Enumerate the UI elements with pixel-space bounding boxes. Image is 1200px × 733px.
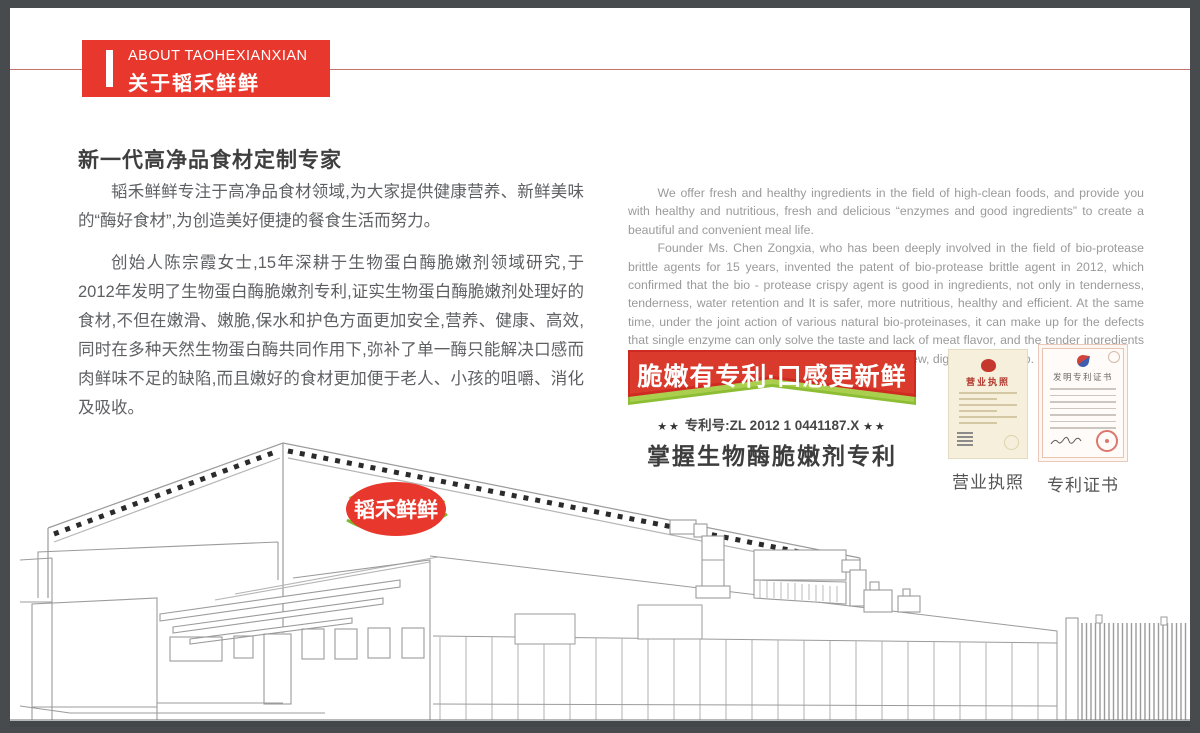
- factory-center-section: [157, 557, 438, 704]
- factory-ground: [10, 720, 1190, 727]
- section-title-en: ABOUT TAOHEXIANXIAN: [128, 48, 308, 64]
- english-paragraph-1: We offer fresh and healthy ingredients i…: [628, 184, 1144, 239]
- factory-right-facade: [293, 560, 430, 720]
- ribbon-slogan: 脆嫩有专利·口感更新鲜: [628, 357, 916, 393]
- stamp-icon: [1108, 351, 1120, 363]
- factory-logo-text: 韬禾鲜鲜: [354, 498, 438, 522]
- banner-accent-bar: [106, 50, 113, 87]
- intro-text-cn: 韬禾鲜鲜专注于高净品食材领域,为大家提供健康营养、新鲜美味的“酶好食材”,为创造…: [78, 178, 584, 436]
- factory-right-wall: [430, 556, 1057, 720]
- national-emblem-icon: [981, 359, 996, 372]
- section-title-cn: 关于韬禾鲜鲜: [128, 67, 260, 96]
- rooftop-equipment: [670, 520, 920, 612]
- intro-text-en: We offer fresh and healthy ingredients i…: [628, 184, 1144, 368]
- brochure-page: ABOUT TAOHEXIANXIAN 关于韬禾鲜鲜 新一代高净品食材定制专家 …: [10, 8, 1190, 727]
- patent-cert-doc-title: 发明专利证书: [1039, 371, 1127, 383]
- factory-fence: [1066, 615, 1186, 720]
- business-license-doc-title: 营业执照: [949, 375, 1027, 388]
- intro-paragraph-1: 韬禾鲜鲜专注于高净品食材领域,为大家提供健康营养、新鲜美味的“酶好食材”,为创造…: [78, 178, 584, 236]
- page-title: 新一代高净品食材定制专家: [78, 144, 342, 174]
- patent-ribbon: 脆嫩有专利·口感更新鲜: [628, 350, 916, 412]
- cnipa-logo-icon: [1076, 354, 1090, 368]
- section-header-banner: ABOUT TAOHEXIANXIAN 关于韬禾鲜鲜: [82, 40, 330, 97]
- intro-paragraph-2: 创始人陈宗霞女士,15年深耕于生物蛋白酶脆嫩剂领域研究,于2012年发明了生物蛋…: [78, 249, 584, 423]
- factory-logo: 韬禾鲜鲜: [346, 482, 447, 536]
- factory-line-drawing: 韬禾鲜鲜: [10, 430, 1190, 727]
